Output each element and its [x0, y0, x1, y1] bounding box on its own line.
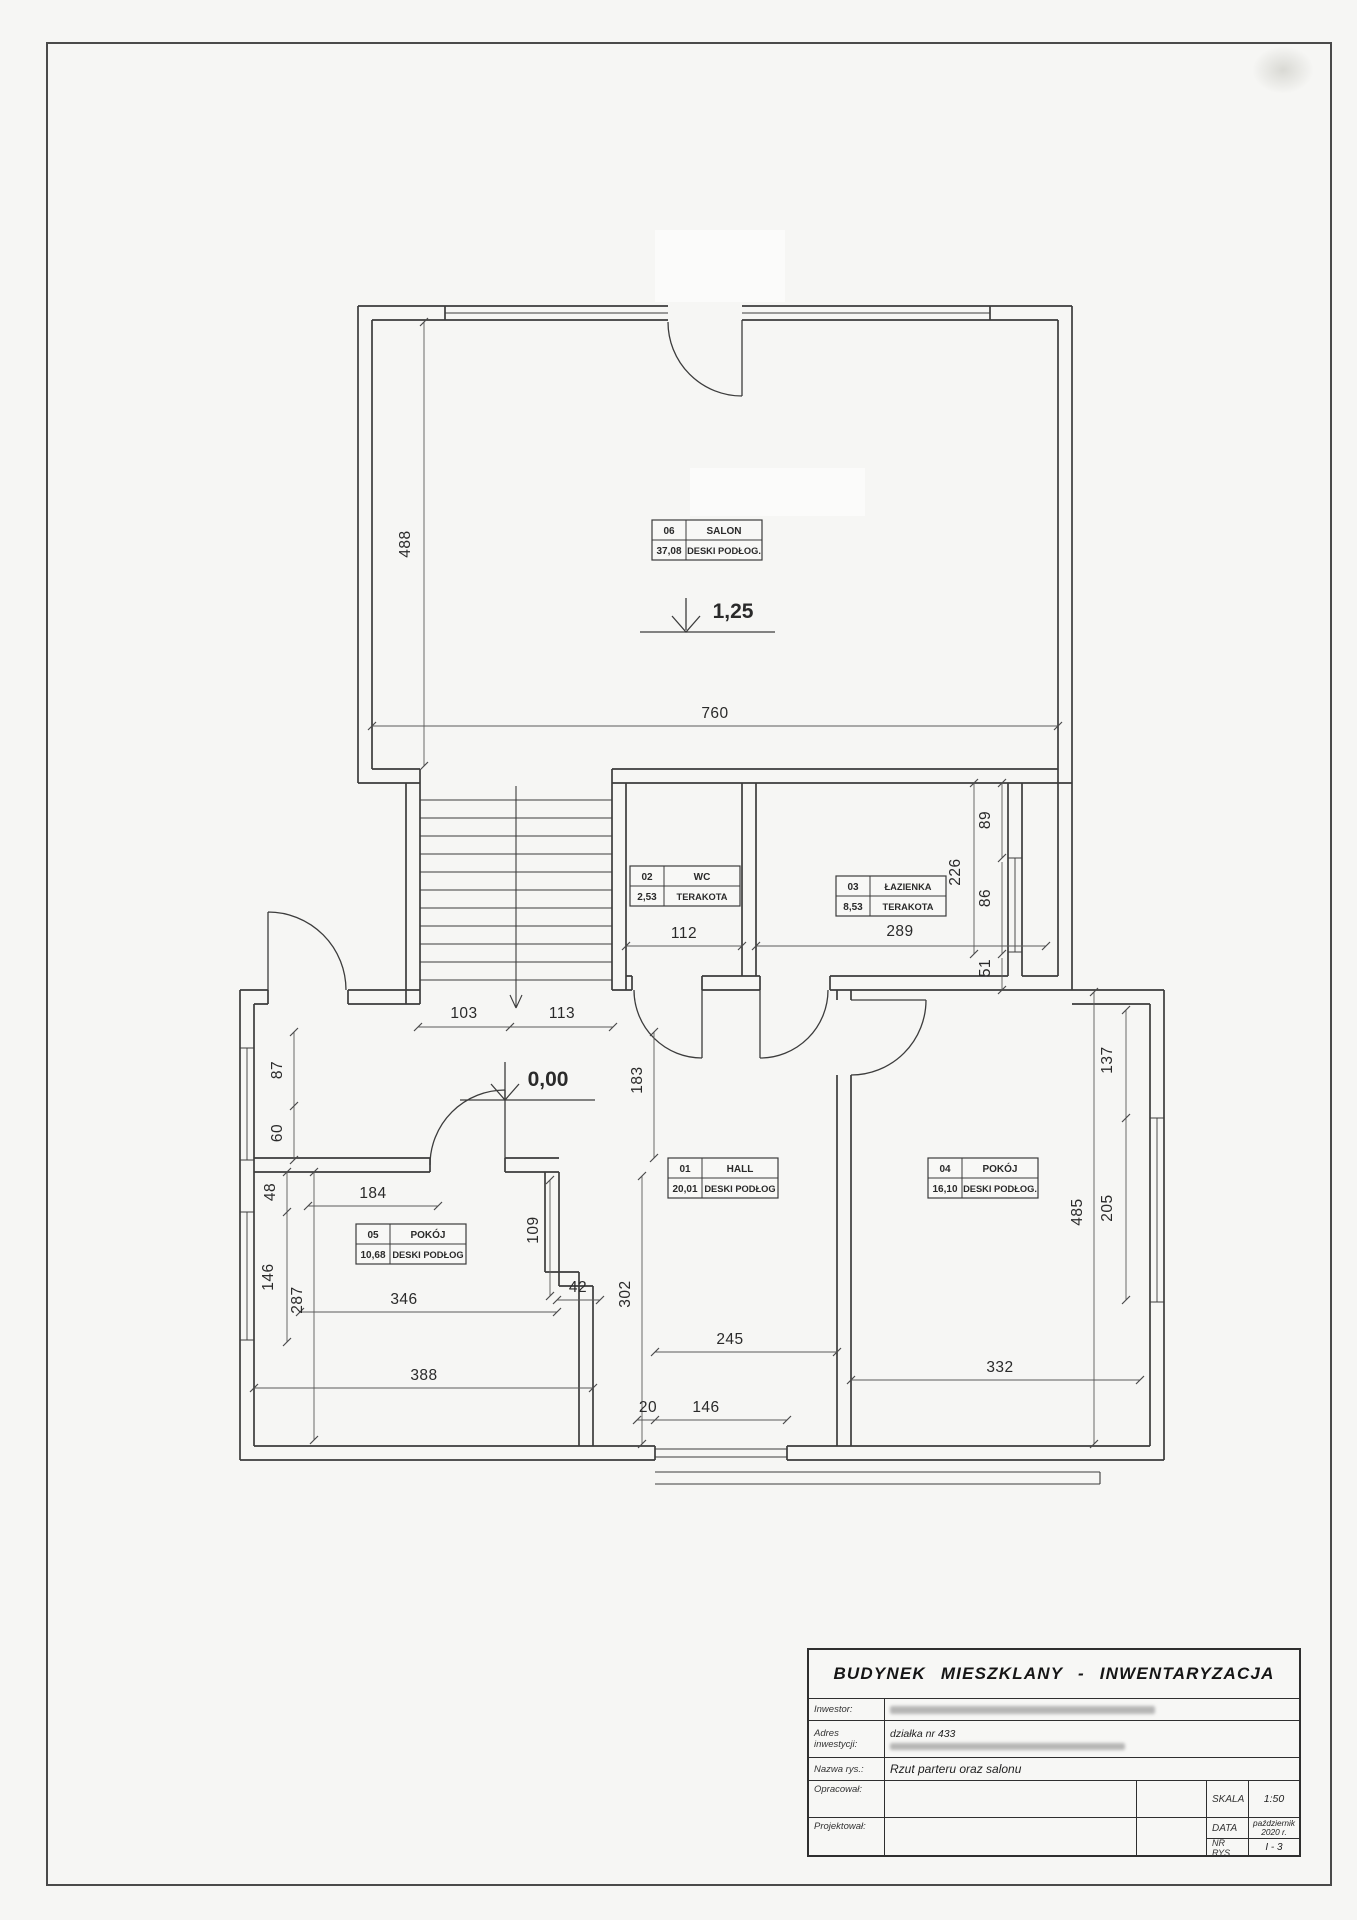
- room-name: HALL: [727, 1164, 754, 1175]
- scanned-drawing-page: { "title_block": { "title": "BUDYNEK MIE…: [0, 0, 1357, 1920]
- dim-stairs-left: 103: [450, 1005, 477, 1022]
- room-id: 06: [663, 526, 675, 537]
- bathroom-window: [1008, 858, 1022, 952]
- title-block-row-inwestor: Inwestor:: [809, 1698, 1299, 1720]
- data-label: DATA: [1207, 1818, 1249, 1839]
- room-area: 16,10: [932, 1184, 957, 1195]
- empty-cell: [1137, 1818, 1207, 1855]
- opracowal-value: [885, 1781, 1137, 1817]
- dim-door-a: 20: [639, 1399, 657, 1416]
- redaction-patch: [655, 230, 785, 302]
- inwestor-value: [885, 1699, 1299, 1720]
- entrance-door: [268, 912, 346, 990]
- room-floor: DESKI PODŁOG.: [963, 1184, 1037, 1194]
- title-block: BUDYNEK MIESZKLANY - INWENTARYZACJA Inwe…: [807, 1648, 1301, 1857]
- room-name: ŁAZIENKA: [885, 882, 932, 892]
- room-label-wc: 02 WC 2,53 TERAKOTA: [630, 866, 740, 906]
- room-id: 04: [939, 1164, 951, 1175]
- dimension-labels: 760 488 112 289 89 226 86 51 103 113 183…: [260, 530, 1116, 1416]
- dim-hall-entry: 183: [629, 1066, 646, 1093]
- room-id: 05: [367, 1230, 379, 1241]
- redacted-text: [890, 1706, 1155, 1714]
- dim-hall-bottom: 245: [716, 1331, 743, 1348]
- salon-door: [668, 320, 742, 396]
- dim-right-mid: 86: [977, 889, 994, 907]
- room-label-bathroom: 03 ŁAZIENKA 8,53 TERAKOTA: [836, 876, 946, 916]
- level-mark-salon: 1,25: [640, 598, 775, 632]
- data-value-line2: 2020 r.: [1261, 1828, 1287, 1837]
- room5-door: [430, 1090, 505, 1165]
- dim-left-d: 146: [260, 1263, 277, 1290]
- dim-door-b: 146: [692, 1399, 719, 1416]
- redacted-text: [890, 1743, 1125, 1750]
- adres-value-line1: działka nr 433: [890, 1728, 955, 1740]
- dim-left-total: 287: [289, 1286, 306, 1313]
- dim-left-a: 87: [269, 1061, 286, 1079]
- dim-salon-width: 760: [701, 705, 728, 722]
- title-block-row-nazwa: Nazwa rys.: Rzut parteru oraz salonu: [809, 1757, 1299, 1780]
- bathroom-door: [760, 990, 828, 1058]
- dim-left-b: 60: [269, 1124, 286, 1142]
- skala-value: 1:50: [1249, 1781, 1299, 1817]
- nr-rys-value: I - 3: [1249, 1839, 1299, 1856]
- room-area: 20,01: [672, 1184, 697, 1195]
- terrace-step: [655, 1472, 1100, 1484]
- dim-room4-window: 205: [1099, 1194, 1116, 1221]
- dim-room5-inner: 346: [390, 1291, 417, 1308]
- projektowal-value: [885, 1818, 1137, 1855]
- redaction-patch: [690, 468, 865, 516]
- room-name: POKÓJ: [982, 1162, 1017, 1175]
- room-id: 03: [847, 882, 859, 893]
- dim-room4-wall: 137: [1099, 1046, 1116, 1073]
- dim-right-top: 89: [977, 811, 994, 829]
- room-floor: DESKI PODŁOG: [392, 1250, 463, 1260]
- room-area: 10,68: [360, 1250, 385, 1261]
- adres-value: działka nr 433: [885, 1721, 1299, 1757]
- room-label-room4: 04 POKÓJ 16,10 DESKI PODŁOG.: [928, 1158, 1038, 1198]
- title-block-row-projektowal: Projektował: DATA październik 2020 r. NR…: [809, 1817, 1299, 1855]
- room-id: 01: [679, 1164, 691, 1175]
- room-label-salon: 06 SALON 37,08 DESKI PODŁOG.: [652, 520, 762, 560]
- title-block-row-adres: Adres inwestycji: działka nr 433: [809, 1720, 1299, 1757]
- dim-room4-height: 485: [1069, 1198, 1086, 1225]
- adres-label: Adres inwestycji:: [809, 1721, 885, 1757]
- dim-hall-height: 302: [617, 1280, 634, 1307]
- nazwa-label: Nazwa rys.:: [809, 1758, 885, 1780]
- level-ground-value: 0,00: [528, 1068, 569, 1091]
- room-floor: DESKI PODŁOG.: [687, 546, 761, 556]
- dim-room5-top: 184: [359, 1185, 386, 1202]
- dim-left-c: 48: [262, 1183, 279, 1201]
- dim-room5-bottom: 388: [410, 1367, 437, 1384]
- room4-door: [851, 1000, 926, 1075]
- room-label-hall: 01 HALL 20,01 DESKI PODŁOG: [668, 1158, 778, 1198]
- room-name: SALON: [707, 526, 742, 537]
- floor-plan: 760 488 112 289 89 226 86 51 103 113 183…: [0, 0, 1357, 1920]
- dim-room4-bottom: 332: [986, 1359, 1013, 1376]
- room-label-room5: 05 POKÓJ 10,68 DESKI PODŁOG: [356, 1224, 466, 1264]
- title-block-row-opracowal: Opracował: SKALA 1:50: [809, 1780, 1299, 1817]
- room-area: 8,53: [843, 902, 863, 913]
- dim-salon-height: 488: [397, 530, 414, 557]
- dim-room5-side: 109: [525, 1216, 542, 1243]
- stairs-walk-line: [510, 786, 522, 1008]
- level-salon-value: 1,25: [713, 600, 754, 623]
- dim-wc-width: 112: [671, 925, 697, 942]
- dim-right-bottom: 51: [977, 959, 994, 977]
- empty-cell: [1137, 1781, 1207, 1817]
- room-area: 37,08: [656, 546, 681, 557]
- dim-room5-step: 42: [569, 1279, 587, 1296]
- skala-label: SKALA: [1207, 1781, 1249, 1817]
- nazwa-value: Rzut parteru oraz salonu: [885, 1758, 1299, 1780]
- data-value: październik 2020 r.: [1249, 1818, 1299, 1839]
- opracowal-label: Opracował:: [809, 1781, 885, 1817]
- room-floor: DESKI PODŁOG: [704, 1184, 775, 1194]
- dim-bathroom-width: 289: [886, 923, 913, 940]
- room-area: 2,53: [637, 892, 657, 903]
- nr-rys-label: NR RYS.: [1207, 1839, 1249, 1856]
- dim-stairs-right: 113: [549, 1005, 575, 1022]
- drawing-title: BUDYNEK MIESZKLANY - INWENTARYZACJA: [809, 1650, 1299, 1698]
- wc-door: [634, 990, 702, 1058]
- room-floor: TERAKOTA: [677, 892, 728, 902]
- projektowal-label: Projektował:: [809, 1818, 885, 1855]
- dim-right-total: 226: [947, 858, 964, 885]
- room-name: WC: [694, 872, 711, 883]
- room-id: 02: [641, 872, 653, 883]
- stairs-walls: [406, 783, 420, 1004]
- inwestor-label: Inwestor:: [809, 1699, 885, 1720]
- room-floor: TERAKOTA: [883, 902, 934, 912]
- room-name: POKÓJ: [410, 1228, 445, 1241]
